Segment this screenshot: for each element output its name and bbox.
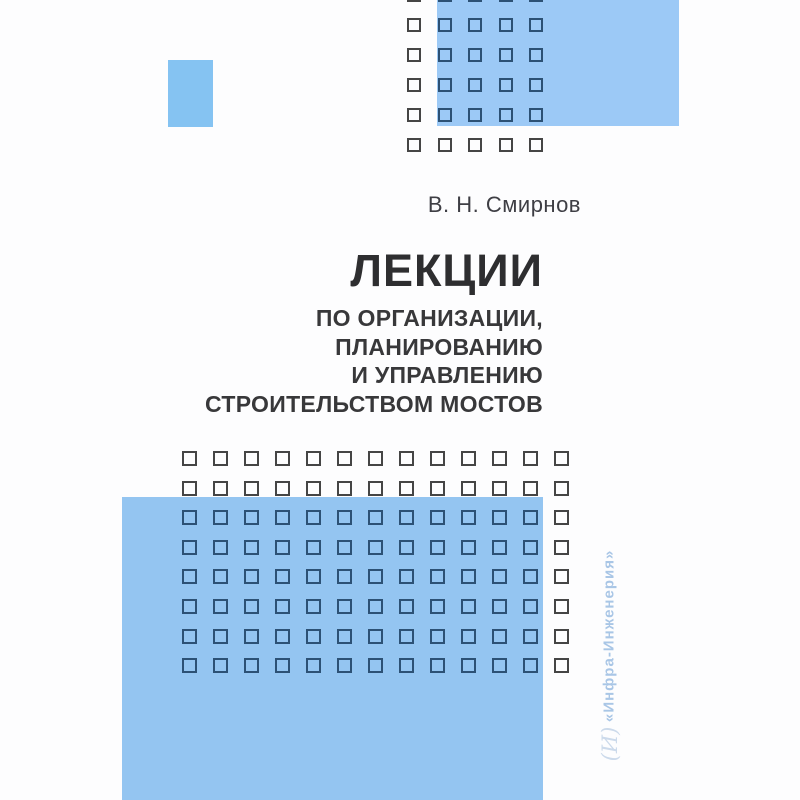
- publisher-logo-icon: (И): [588, 722, 632, 766]
- text-layer: В. Н. Смирнов ЛЕКЦИИ ПО ОРГАНИЗАЦИИ, ПЛА…: [0, 0, 800, 800]
- subtitle-line: СТРОИТЕЛЬСТВОМ МОСТОВ: [205, 390, 543, 419]
- book-cover: В. Н. Смирнов ЛЕКЦИИ ПО ОРГАНИЗАЦИИ, ПЛА…: [0, 0, 800, 800]
- book-subtitle: ПО ОРГАНИЗАЦИИ, ПЛАНИРОВАНИЮ И УПРАВЛЕНИ…: [205, 304, 543, 418]
- subtitle-line: И УПРАВЛЕНИЮ: [205, 361, 543, 390]
- subtitle-line: ПО ОРГАНИЗАЦИИ,: [205, 304, 543, 333]
- publisher-name: «Инфра-Инженерия»: [598, 545, 620, 727]
- subtitle-line: ПЛАНИРОВАНИЮ: [205, 333, 543, 362]
- title-block: ЛЕКЦИИ ПО ОРГАНИЗАЦИИ, ПЛАНИРОВАНИЮ И УП…: [205, 248, 543, 418]
- author-name: В. Н. Смирнов: [428, 192, 581, 218]
- book-title: ЛЕКЦИИ: [205, 248, 543, 293]
